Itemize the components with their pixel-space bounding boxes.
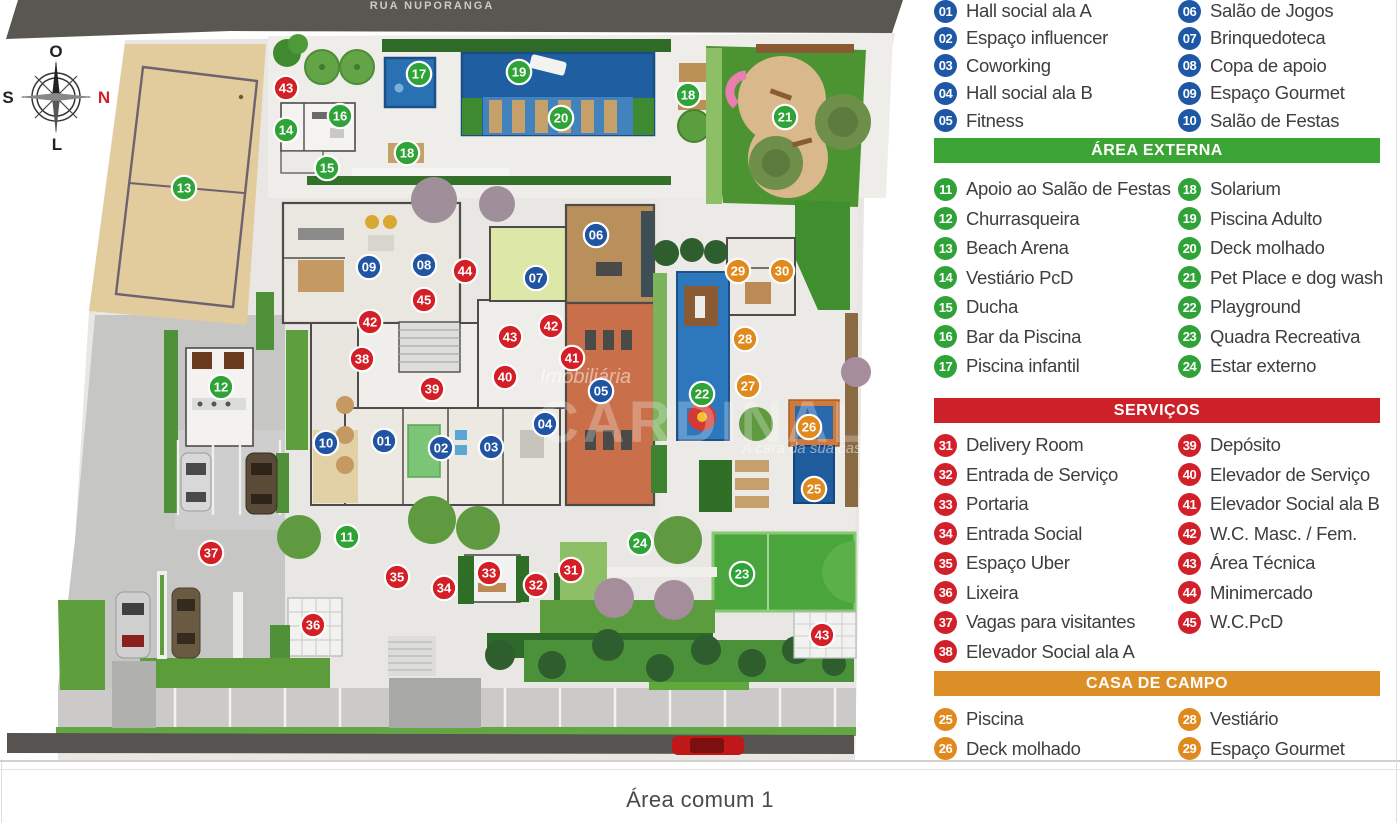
svg-text:17: 17 (412, 67, 426, 82)
svg-text:13: 13 (177, 181, 191, 196)
svg-text:22: 22 (695, 387, 709, 402)
svg-text:19: 19 (512, 65, 526, 80)
svg-text:06: 06 (589, 228, 603, 243)
svg-text:24: 24 (633, 536, 648, 551)
svg-text:36: 36 (306, 618, 320, 633)
svg-text:30: 30 (775, 264, 789, 279)
svg-text:21: 21 (778, 110, 792, 125)
svg-text:35: 35 (390, 570, 404, 585)
svg-text:08: 08 (417, 258, 431, 273)
svg-text:32: 32 (529, 578, 543, 593)
svg-text:27: 27 (741, 379, 755, 394)
svg-text:33: 33 (482, 566, 496, 581)
svg-text:N: N (98, 88, 110, 107)
svg-text:26: 26 (802, 420, 816, 435)
svg-text:12: 12 (214, 380, 228, 395)
svg-text:39: 39 (425, 382, 439, 397)
svg-text:25: 25 (807, 482, 821, 497)
svg-text:11: 11 (340, 530, 354, 545)
svg-text:42: 42 (363, 315, 377, 330)
svg-text:45: 45 (417, 293, 431, 308)
svg-text:01: 01 (377, 434, 391, 449)
svg-text:04: 04 (538, 417, 553, 432)
svg-text:40: 40 (498, 370, 512, 385)
svg-text:20: 20 (554, 111, 568, 126)
svg-text:02: 02 (434, 441, 448, 456)
svg-text:S: S (2, 88, 13, 107)
svg-text:18: 18 (681, 88, 695, 103)
svg-text:29: 29 (731, 264, 745, 279)
svg-text:15: 15 (320, 161, 334, 176)
svg-text:L: L (52, 135, 62, 154)
svg-text:A cara da sua casa.: A cara da sua casa. (741, 440, 874, 457)
svg-text:28: 28 (738, 332, 752, 347)
svg-text:38: 38 (355, 352, 369, 367)
svg-text:05: 05 (594, 384, 608, 399)
svg-text:18: 18 (400, 146, 414, 161)
svg-text:43: 43 (815, 628, 829, 643)
svg-text:16: 16 (333, 109, 347, 124)
svg-text:43: 43 (503, 330, 517, 345)
svg-text:37: 37 (204, 546, 218, 561)
svg-text:41: 41 (565, 351, 579, 366)
svg-text:14: 14 (279, 123, 294, 138)
svg-text:RUA NUPORANGA: RUA NUPORANGA (370, 0, 495, 12)
svg-text:42: 42 (544, 319, 558, 334)
svg-text:44: 44 (458, 264, 473, 279)
svg-text:10: 10 (319, 436, 333, 451)
svg-text:Imobiliária: Imobiliária (540, 366, 631, 388)
svg-text:09: 09 (362, 260, 376, 275)
svg-text:07: 07 (529, 271, 543, 286)
svg-text:O: O (49, 42, 62, 61)
svg-text:23: 23 (735, 567, 749, 582)
svg-text:31: 31 (564, 563, 578, 578)
svg-text:03: 03 (484, 440, 498, 455)
svg-text:34: 34 (437, 581, 452, 596)
svg-text:43: 43 (279, 81, 293, 96)
